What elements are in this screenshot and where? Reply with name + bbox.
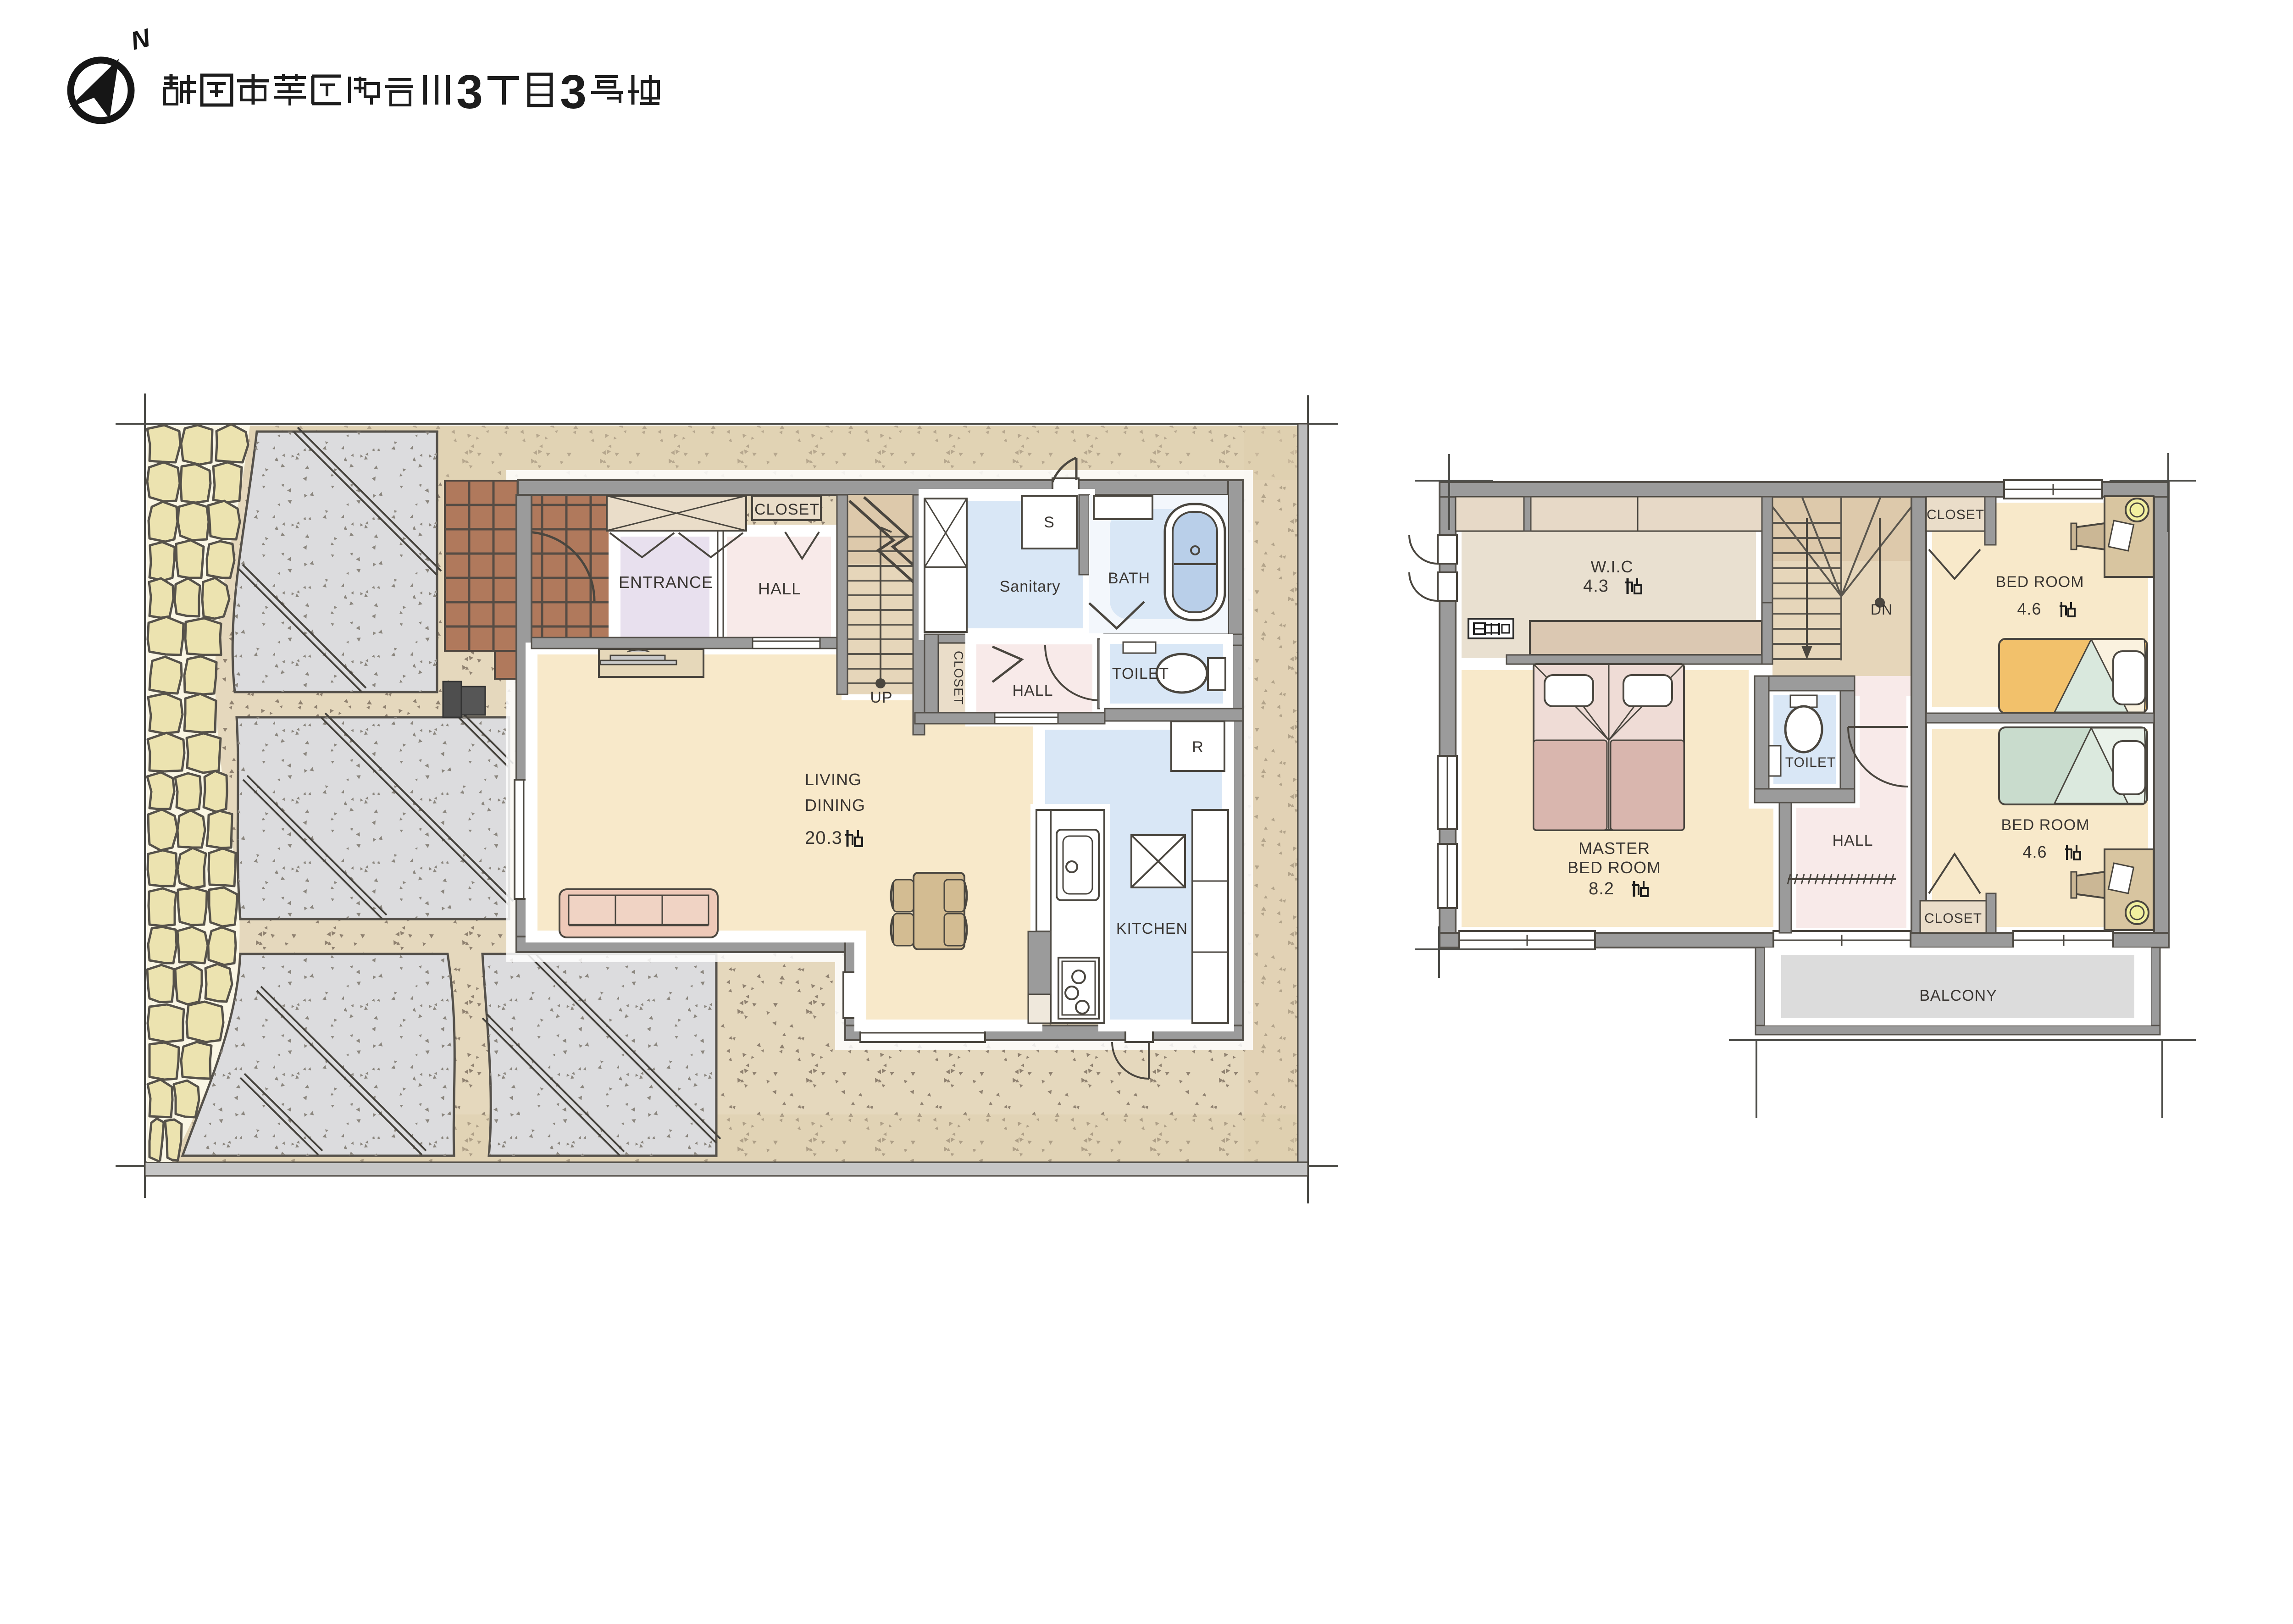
svg-text:BALCONY: BALCONY [1919,987,1997,1004]
svg-text:HALL: HALL [1012,682,1053,699]
svg-text:8.2: 8.2 [1589,879,1614,898]
svg-text:TOILET: TOILET [1112,665,1169,682]
svg-text:BED ROOM: BED ROOM [1567,858,1661,877]
svg-text:4.6: 4.6 [2017,599,2041,618]
svg-text:HALL: HALL [758,579,801,598]
svg-text:4.6: 4.6 [2022,842,2047,861]
svg-text:CLOSET: CLOSET [1927,507,1984,522]
svg-text:DINING: DINING [805,796,865,815]
svg-text:ENTRANCE: ENTRANCE [619,573,713,592]
svg-text:LIVING: LIVING [805,770,862,789]
svg-text:CLOSET: CLOSET [1924,911,1982,926]
svg-text:3: 3 [560,66,587,119]
svg-text:BATH: BATH [1108,570,1150,587]
svg-text:3: 3 [456,66,483,119]
svg-text:S: S [1044,514,1055,531]
svg-text:BED ROOM: BED ROOM [1995,573,2084,591]
svg-text:HALL: HALL [1832,832,1873,849]
svg-text:W.I.C: W.I.C [1591,557,1634,576]
svg-text:20.3: 20.3 [805,828,842,848]
svg-text:Sanitary: Sanitary [1000,578,1061,595]
svg-text:UP: UP [870,689,892,706]
svg-text:KITCHEN: KITCHEN [1116,920,1188,937]
svg-text:4.3: 4.3 [1583,576,1609,596]
svg-text:CLOSET: CLOSET [754,501,820,518]
svg-text:MASTER: MASTER [1579,839,1650,858]
svg-text:TOILET: TOILET [1785,755,1836,770]
svg-text:DN: DN [1871,601,1893,618]
svg-text:N: N [128,22,154,55]
svg-text:BED ROOM: BED ROOM [2001,816,2089,834]
svg-text:R: R [1192,738,1204,756]
svg-text:CLOSET: CLOSET [952,651,966,705]
